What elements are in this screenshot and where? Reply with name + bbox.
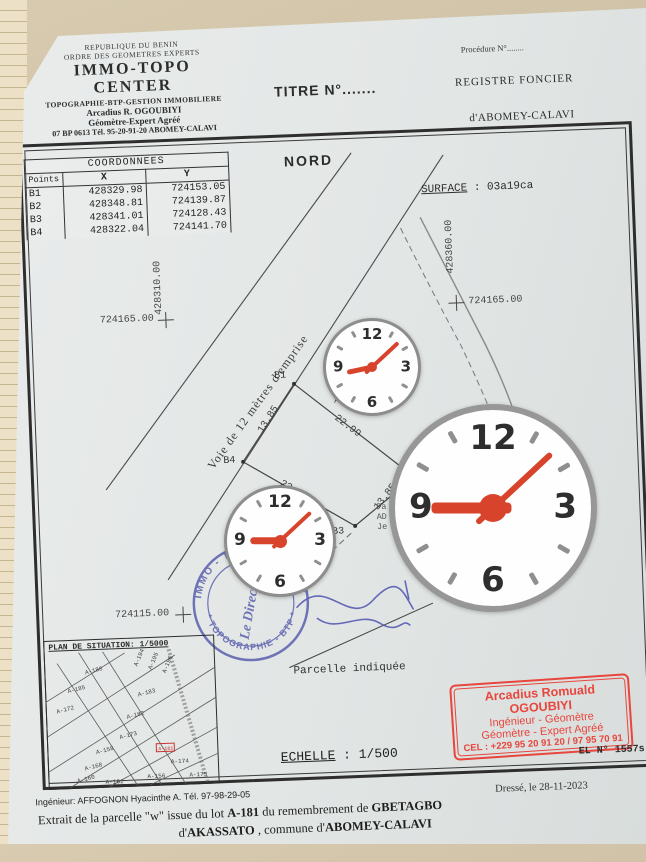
clock-numeral-12: 12 — [268, 492, 292, 512]
situation-map: A-181 A-188 A-185 A-172 A-183 A-182 A-17… — [44, 636, 219, 789]
grid-cross-right — [448, 295, 465, 312]
svg-text:A-183: A-183 — [137, 687, 157, 698]
svg-text:A-194: A-194 — [133, 648, 147, 668]
scale-value: : 1/500 — [343, 746, 398, 763]
clock-numeral-3: 3 — [314, 530, 326, 550]
clock-numeral-6: 6 — [367, 393, 377, 411]
highlighted-lot: A-181 — [158, 746, 173, 753]
svg-text:A-172: A-172 — [56, 704, 76, 715]
signature — [296, 581, 414, 631]
north-label: NORD — [284, 152, 334, 170]
svg-text:A-196: A-196 — [161, 654, 175, 674]
clock-large: 12 3 6 9 — [389, 404, 597, 612]
engineer-line: Ingénieur: AFFOGNON Hyacinthe A. Tél. 97… — [35, 789, 250, 807]
stamp-role2: Géomètre - Expert Agréé — [454, 720, 630, 744]
clock-numeral-3: 3 — [553, 486, 577, 526]
curved-road-solid — [420, 214, 513, 414]
svg-text:A-168: A-168 — [84, 761, 104, 772]
clock-medium: 12 3 6 9 — [224, 485, 336, 597]
svg-text:A-156: A-156 — [147, 772, 166, 780]
org-name: IMMO-TOPO CENTER — [37, 57, 228, 100]
surface-label: SURFACE — [421, 182, 468, 196]
clock-small: 12 3 6 9 — [323, 318, 421, 416]
owner-text-fragment-2: PaADJe — [376, 502, 387, 532]
titre-number: TITRE N°....... — [240, 79, 410, 102]
situation-map-box: PLAN DE SITUATION: 1/5000 — [43, 634, 220, 789]
svg-text:A-173: A-173 — [119, 730, 139, 741]
svg-text:A-195: A-195 — [147, 651, 161, 671]
svg-text:A-160: A-160 — [76, 773, 96, 784]
point-b4: B4 — [223, 456, 235, 467]
clock-numeral-6: 6 — [481, 560, 505, 600]
grid-y-right: 724165.00 — [468, 294, 522, 307]
svg-text:A-161: A-161 — [105, 778, 124, 786]
surface-value: : 03a19ca — [474, 180, 534, 194]
letterhead: REPUBLIQUE DU BENIN ORDRE DES GEOMETRES … — [36, 38, 229, 139]
col-points: Points — [25, 172, 63, 187]
clock-numeral-3: 3 — [401, 357, 411, 375]
registre-ville: d'ABOMEY-CALAVI — [469, 108, 575, 124]
clock-numeral-9: 9 — [333, 357, 343, 375]
clock-numeral-9: 9 — [234, 530, 246, 550]
stamp-name: Arcadius Romuald OGOUBIYI — [452, 680, 629, 720]
clock-numeral-12: 12 — [469, 418, 516, 458]
svg-text:A-182: A-182 — [126, 710, 146, 721]
procedure-number: Procédure N°........ — [461, 42, 524, 54]
scale-label: ECHELLE — [280, 748, 335, 765]
coordinates-table: COORDONNEES Points X Y B1 428329.98 7241… — [24, 152, 232, 241]
stamp-role1: Ingénieur - Géomètre — [453, 708, 629, 732]
svg-text:A-175: A-175 — [189, 771, 208, 779]
svg-text:A-158: A-158 — [95, 745, 115, 756]
point-b1: B1 — [274, 371, 286, 382]
clock-numeral-9: 9 — [409, 486, 433, 526]
registre-foncier: REGISTRE FONCIER — [455, 72, 574, 89]
clock-numeral-6: 6 — [274, 572, 286, 592]
date-drawn: Dressé, le 28-11-2023 — [495, 780, 588, 795]
svg-text:A-174: A-174 — [171, 758, 190, 766]
clock-numeral-12: 12 — [362, 325, 383, 343]
